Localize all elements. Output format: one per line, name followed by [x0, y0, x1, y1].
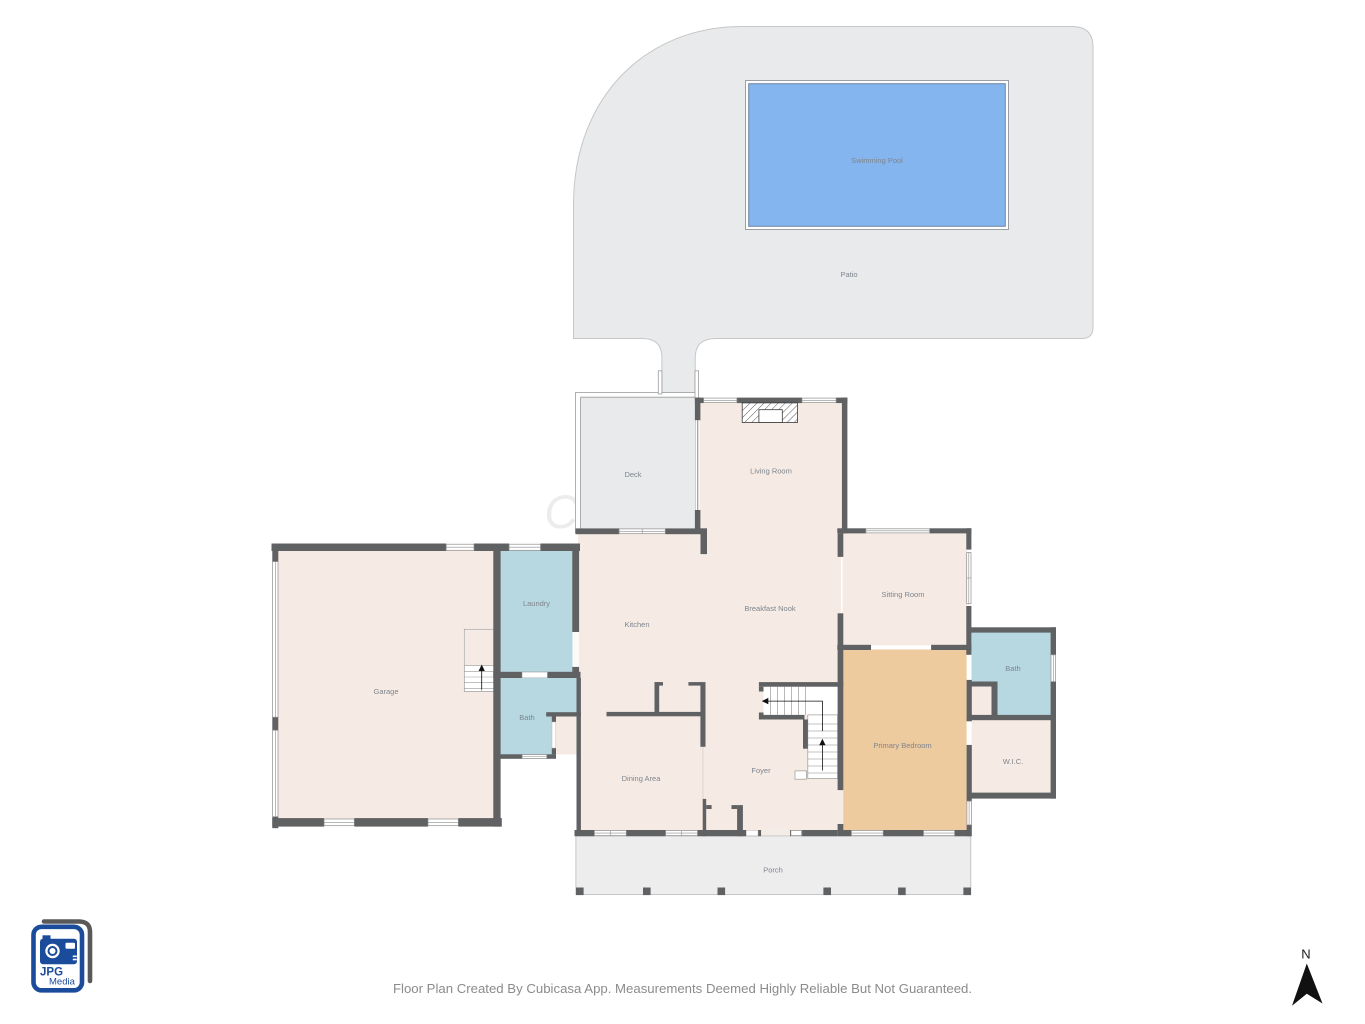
- svg-text:Bath: Bath: [1005, 664, 1020, 673]
- svg-text:Dining Area: Dining Area: [622, 774, 662, 783]
- svg-text:Patio: Patio: [840, 270, 857, 279]
- svg-text:Swimming Pool: Swimming Pool: [851, 156, 903, 165]
- svg-text:Kitchen: Kitchen: [624, 620, 649, 629]
- svg-text:Media: Media: [49, 977, 76, 988]
- svg-text:Laundry: Laundry: [523, 599, 550, 608]
- svg-text:N: N: [1301, 947, 1310, 962]
- svg-text:Primary Bedroom: Primary Bedroom: [873, 741, 931, 750]
- svg-text:Foyer: Foyer: [751, 766, 771, 775]
- svg-text:Porch: Porch: [763, 866, 783, 875]
- svg-text:Bath: Bath: [519, 713, 534, 722]
- svg-text:Living Room: Living Room: [750, 467, 792, 476]
- svg-text:W.I.C.: W.I.C.: [1003, 757, 1023, 766]
- svg-text:Deck: Deck: [624, 470, 641, 479]
- svg-text:Garage: Garage: [373, 687, 398, 696]
- svg-text:Breakfast Nook: Breakfast Nook: [744, 604, 796, 613]
- svg-text:Floor Plan Created By Cubicasa: Floor Plan Created By Cubicasa App. Meas…: [393, 981, 972, 996]
- svg-text:Sitting Room: Sitting Room: [882, 590, 925, 599]
